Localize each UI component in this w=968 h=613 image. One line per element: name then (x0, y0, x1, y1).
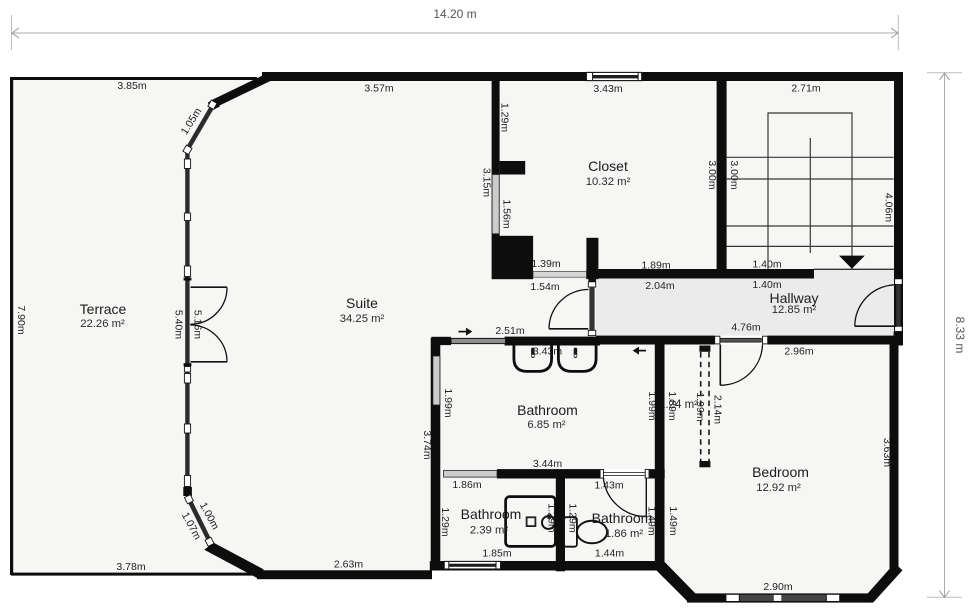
svg-text:3.00m: 3.00m (706, 160, 718, 189)
svg-text:1.29m: 1.29m (499, 103, 511, 132)
svg-text:2.71m: 2.71m (791, 83, 820, 95)
svg-text:Bathroom: Bathroom (592, 510, 653, 526)
svg-text:Bathroom: Bathroom (517, 402, 578, 418)
svg-text:12.92 m²: 12.92 m² (756, 482, 801, 494)
svg-text:1.49m: 1.49m (667, 506, 679, 535)
svg-text:2.39 m²: 2.39 m² (470, 525, 509, 537)
svg-text:6.85 m²: 6.85 m² (527, 419, 566, 431)
svg-text:Bedroom: Bedroom (752, 464, 809, 480)
svg-text:2.90m: 2.90m (763, 581, 792, 593)
svg-text:10.32 m²: 10.32 m² (586, 176, 631, 188)
svg-text:4.76m: 4.76m (731, 322, 760, 334)
svg-text:1.85m: 1.85m (482, 548, 511, 560)
svg-text:22.26 m²: 22.26 m² (80, 318, 125, 330)
svg-text:3.85m: 3.85m (117, 80, 146, 92)
svg-text:1.86m: 1.86m (452, 479, 481, 491)
svg-text:3.57m: 3.57m (364, 83, 393, 95)
svg-text:1.24 m²: 1.24 m² (659, 399, 698, 411)
svg-text:8.33 m: 8.33 m (953, 317, 967, 354)
svg-text:34.25 m²: 34.25 m² (340, 313, 385, 325)
svg-text:Suite: Suite (346, 295, 378, 311)
svg-text:14.20 m: 14.20 m (433, 7, 476, 21)
svg-text:3.44m: 3.44m (533, 458, 562, 470)
svg-text:1.86 m²: 1.86 m² (605, 528, 644, 540)
svg-text:4.06m: 4.06m (883, 193, 895, 222)
svg-text:1.29m: 1.29m (439, 507, 451, 536)
svg-text:12.85 m²: 12.85 m² (772, 304, 817, 316)
svg-text:3.15m: 3.15m (481, 168, 493, 197)
svg-text:3.00m: 3.00m (728, 160, 740, 189)
svg-text:1.56m: 1.56m (501, 199, 513, 228)
svg-text:2.04m: 2.04m (645, 280, 674, 292)
svg-text:2.51m: 2.51m (495, 325, 524, 337)
svg-text:5.40m: 5.40m (173, 310, 185, 339)
svg-text:3.78m: 3.78m (116, 561, 145, 573)
svg-text:Terrace: Terrace (80, 301, 127, 317)
svg-text:2.14m: 2.14m (712, 395, 724, 424)
svg-text:Closet: Closet (588, 158, 628, 174)
svg-text:1.99m: 1.99m (442, 388, 454, 417)
svg-text:3.43m: 3.43m (593, 83, 622, 95)
svg-text:2.96m: 2.96m (784, 346, 813, 358)
svg-text:1.43m: 1.43m (594, 480, 623, 492)
svg-text:Bathroom: Bathroom (461, 506, 522, 522)
svg-text:1.44m: 1.44m (595, 548, 624, 560)
svg-text:1.39m: 1.39m (531, 258, 560, 270)
svg-text:2.63m: 2.63m (334, 559, 363, 571)
svg-text:7.90m: 7.90m (15, 305, 27, 334)
svg-text:1.54m: 1.54m (530, 281, 559, 293)
svg-text:1.40m: 1.40m (752, 259, 781, 271)
